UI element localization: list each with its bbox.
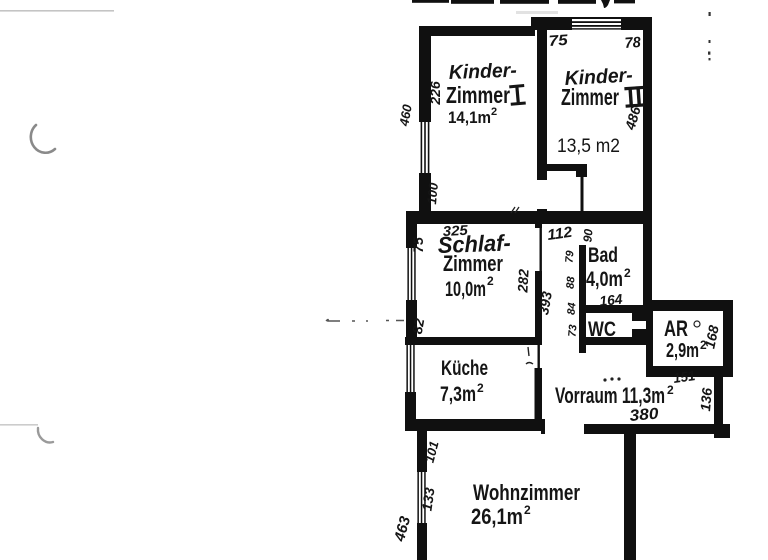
svg-text:Zimmer: Zimmer	[443, 251, 503, 276]
svg-text:112: 112	[546, 224, 574, 244]
svg-text:73: 73	[567, 324, 580, 337]
svg-text:2: 2	[477, 381, 484, 395]
svg-text:164: 164	[599, 291, 624, 309]
svg-text:Zimmer: Zimmer	[446, 82, 510, 108]
svg-text:90: 90	[580, 228, 595, 243]
svg-text:2: 2	[624, 266, 631, 280]
svg-text:14,1m: 14,1m	[448, 108, 491, 127]
svg-text:2: 2	[487, 274, 494, 288]
svg-text:Vorraum 11,3m: Vorraum 11,3m	[555, 383, 665, 408]
svg-text:78: 78	[624, 34, 642, 52]
svg-text:13,5 m2: 13,5 m2	[557, 136, 620, 157]
svg-text:380: 380	[629, 406, 659, 425]
svg-text:79: 79	[564, 249, 577, 263]
svg-text:4,0m: 4,0m	[586, 268, 623, 291]
svg-text:7,3m: 7,3m	[440, 383, 476, 406]
svg-text:226: 226	[427, 81, 443, 106]
svg-text:136: 136	[697, 387, 715, 412]
svg-text:Bad: Bad	[588, 244, 618, 267]
svg-text:2: 2	[667, 383, 674, 397]
svg-text:Kinder-: Kinder-	[448, 60, 517, 84]
svg-text:133: 133	[419, 486, 438, 512]
svg-text:2: 2	[491, 106, 497, 118]
svg-text:Zimmer: Zimmer	[561, 84, 619, 110]
svg-text:88: 88	[565, 275, 578, 289]
svg-text:100: 100	[424, 181, 441, 205]
svg-text:10,0m: 10,0m	[445, 278, 486, 301]
svg-text:325: 325	[442, 222, 468, 239]
svg-text:AR: AR	[664, 316, 688, 341]
svg-text:75: 75	[410, 237, 426, 253]
svg-text:Wohnzimmer: Wohnzimmer	[473, 480, 580, 505]
svg-text:151: 151	[672, 367, 696, 386]
svg-text:2: 2	[524, 503, 531, 517]
svg-text:75: 75	[548, 32, 569, 50]
svg-text:Küche: Küche	[441, 357, 488, 380]
svg-text:WC: WC	[588, 318, 616, 341]
svg-text:84: 84	[566, 302, 579, 315]
svg-text:82: 82	[409, 317, 427, 335]
svg-text:2,9m: 2,9m	[666, 340, 699, 362]
svg-text:282: 282	[514, 268, 531, 293]
svg-text:26,1m: 26,1m	[471, 504, 523, 529]
